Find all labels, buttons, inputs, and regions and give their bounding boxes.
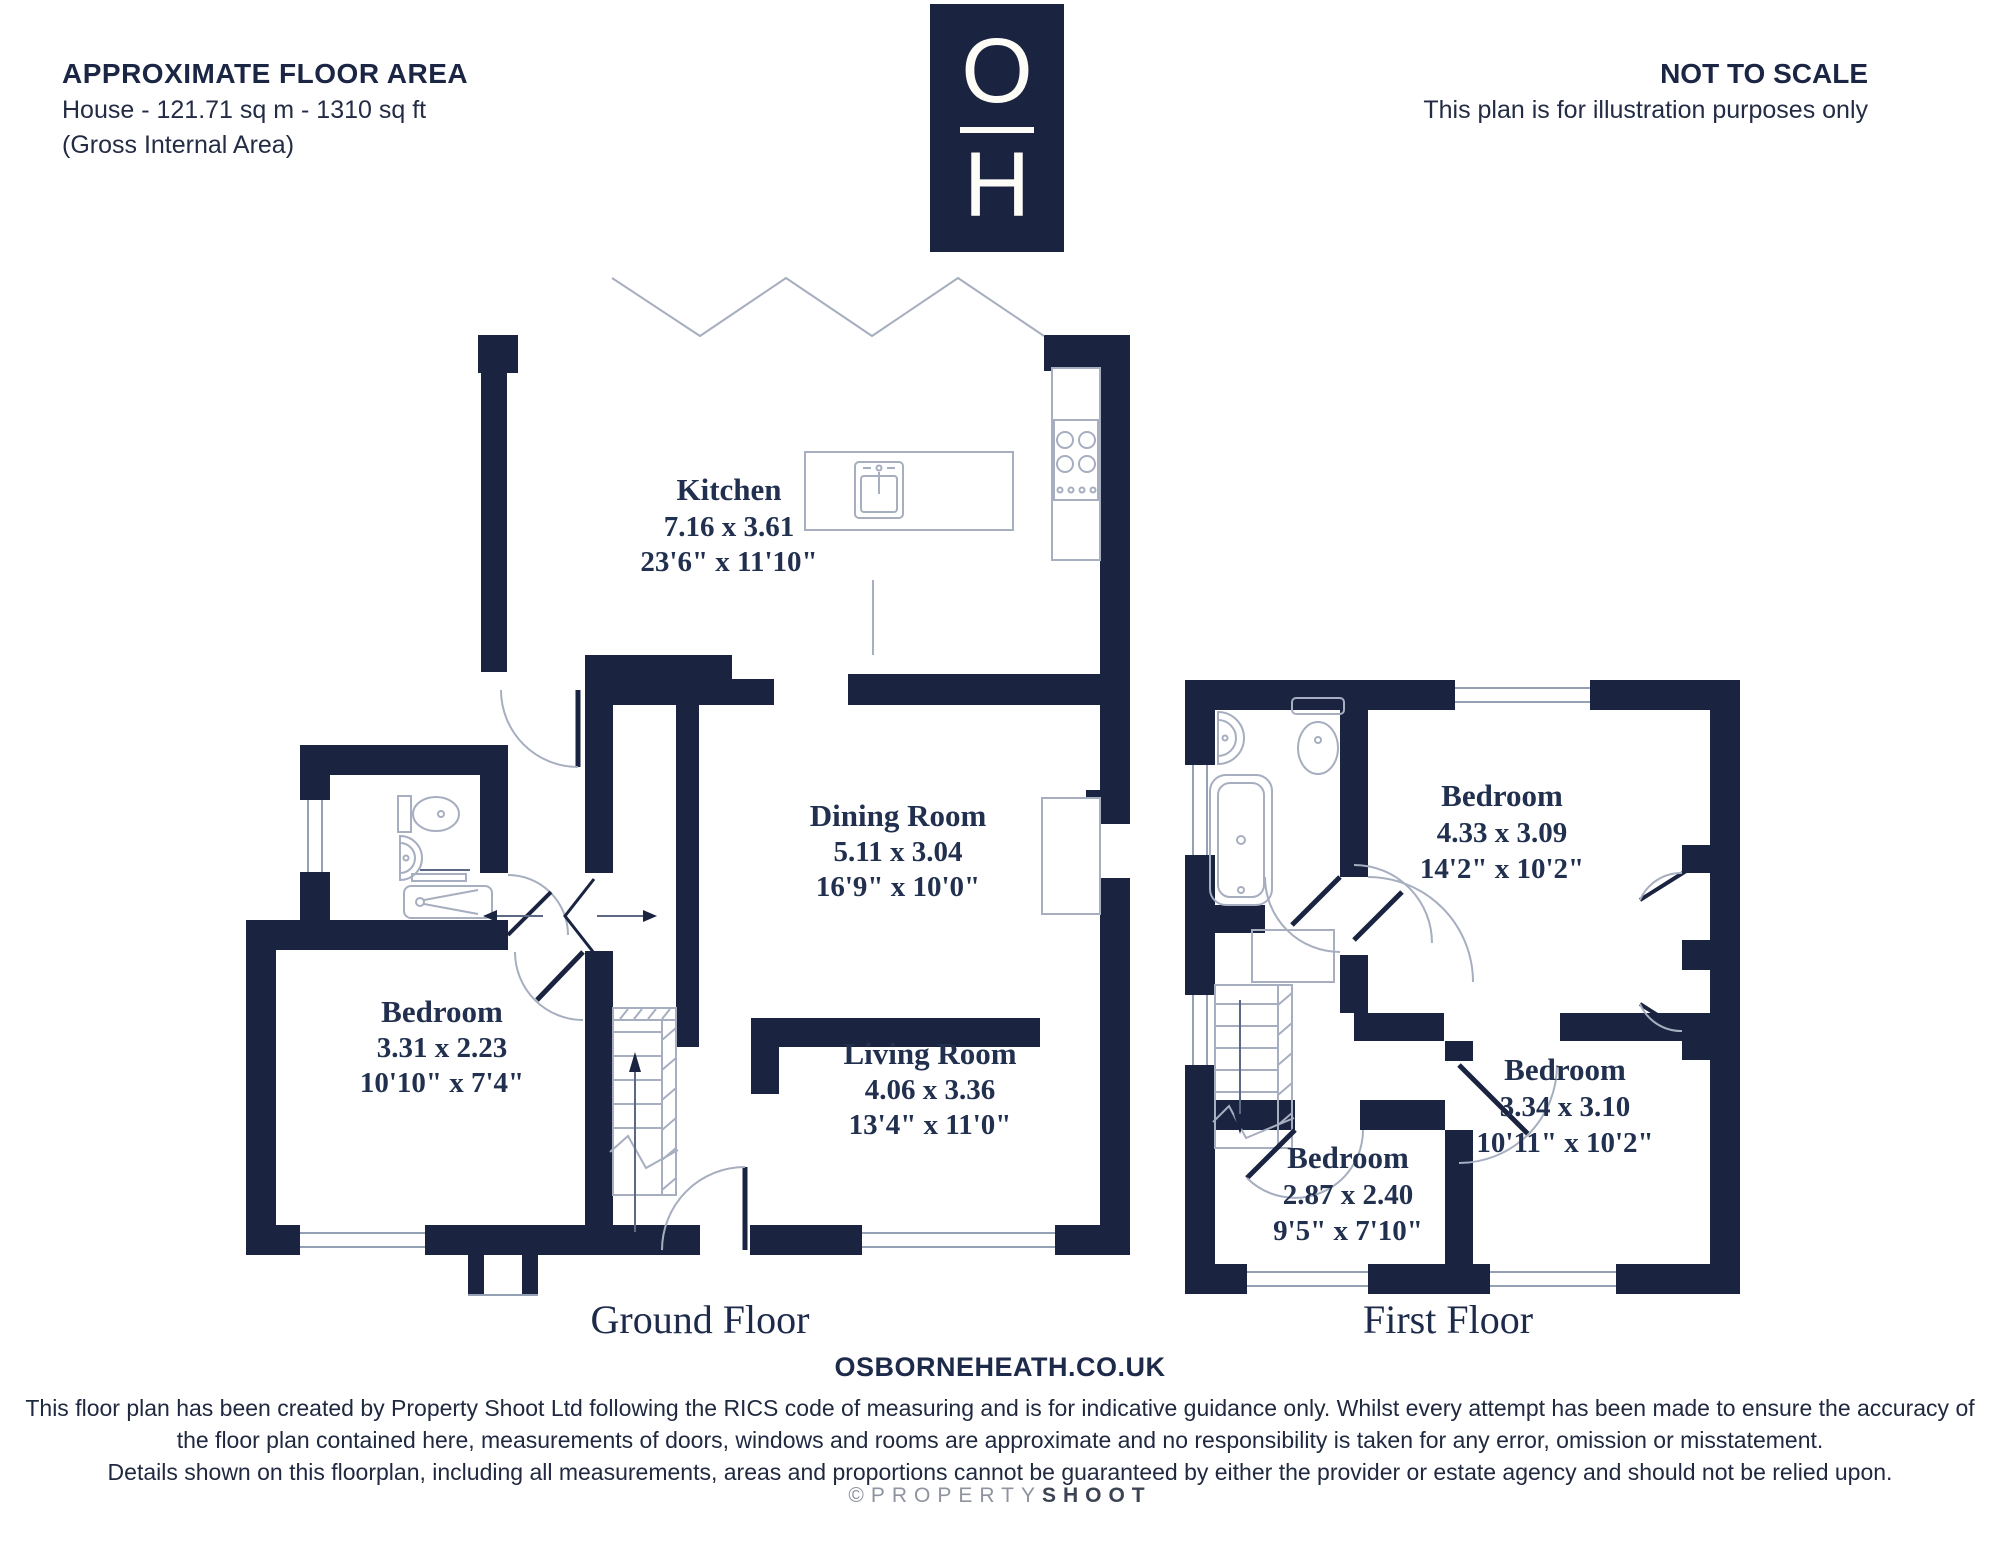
room-label-bedroom-ground: Bedroom 3.31 x 2.23 10'10" x 7'4" xyxy=(360,994,524,1099)
room-name: Bedroom xyxy=(1287,1140,1409,1175)
room-metric: 5.11 x 3.04 xyxy=(834,836,963,868)
bathroom-door-first xyxy=(1265,877,1340,952)
room-metric: 3.31 x 2.23 xyxy=(377,1032,508,1064)
room-name: Dining Room xyxy=(810,798,987,833)
bedroom-door-ground xyxy=(515,952,583,1020)
room-imperial: 10'10" x 7'4" xyxy=(360,1067,524,1099)
room-imperial: 9'5" x 7'10" xyxy=(1273,1215,1423,1247)
room-label-bedroom-1: Bedroom 4.33 x 3.09 14'2" x 10'2" xyxy=(1420,778,1584,885)
hob-icon xyxy=(1054,420,1098,500)
ground-floor-caption: Ground Floor xyxy=(520,1296,880,1343)
ground-floor-plan: Kitchen 7.16 x 3.61 23'6" x 11'10" Dinin… xyxy=(246,278,1130,1295)
room-imperial: 23'6" x 11'10" xyxy=(640,546,817,578)
website-text: OSBORNEHEATH.CO.UK xyxy=(0,1352,2000,1383)
first-floor-plan: Bedroom 4.33 x 3.09 14'2" x 10'2" Bedroo… xyxy=(1185,680,1740,1294)
room-name: Living Room xyxy=(843,1036,1016,1071)
room-imperial: 16'9" x 10'0" xyxy=(816,871,980,903)
room-metric: 7.16 x 3.61 xyxy=(664,511,795,543)
shower-icon xyxy=(404,886,492,918)
kitchen-island xyxy=(805,452,1013,530)
room-label-bedroom-3: Bedroom 2.87 x 2.40 9'5" x 7'10" xyxy=(1273,1140,1423,1247)
toilet-icon xyxy=(398,796,459,832)
disclaimer-line2: the floor plan contained here, measureme… xyxy=(0,1424,2000,1456)
first-floor-caption: First Floor xyxy=(1268,1296,1628,1343)
room-label-bedroom-2: Bedroom 3.34 x 3.10 10'11" x 10'2" xyxy=(1476,1052,1653,1159)
fireplace-icon xyxy=(1042,798,1100,914)
room-metric: 4.06 x 3.36 xyxy=(865,1074,996,1106)
room-metric: 3.34 x 3.10 xyxy=(1500,1091,1631,1123)
room-imperial: 14'2" x 10'2" xyxy=(1420,853,1584,885)
first-floor-walls xyxy=(1185,680,1740,1294)
room-imperial: 13'4" x 11'0" xyxy=(849,1109,1012,1141)
room-metric: 2.87 x 2.40 xyxy=(1283,1179,1414,1211)
room-name: Bedroom xyxy=(1504,1052,1626,1087)
hall-doorway-chevron xyxy=(565,879,594,953)
towel-rail-icon xyxy=(412,870,470,881)
room-name: Bedroom xyxy=(381,994,503,1029)
disclaimer: This floor plan has been created by Prop… xyxy=(0,1392,2000,1488)
room-label-living: Living Room 4.06 x 3.36 13'4" x 11'0" xyxy=(843,1036,1016,1141)
bathroom-door xyxy=(508,875,568,935)
basin-icon-first xyxy=(1218,712,1244,764)
room-name: Bedroom xyxy=(1441,778,1563,813)
stairs-ground-floor xyxy=(610,1008,678,1232)
wardrobe-doors xyxy=(1640,871,1686,1033)
room-name: Kitchen xyxy=(676,472,781,507)
room-label-dining: Dining Room 5.11 x 3.04 16'9" x 10'0" xyxy=(810,798,987,903)
room-metric: 4.33 x 3.09 xyxy=(1437,817,1568,849)
footer-brand: SHOOT xyxy=(1042,1484,1152,1507)
disclaimer-line1: This floor plan has been created by Prop… xyxy=(0,1392,2000,1424)
sink-icon xyxy=(855,462,903,518)
room-label-kitchen: Kitchen 7.16 x 3.61 23'6" x 11'10" xyxy=(640,472,817,578)
bifold-doors-zigzag xyxy=(612,278,1044,336)
entry-arrow-right xyxy=(597,910,657,922)
room-imperial: 10'11" x 10'2" xyxy=(1476,1127,1653,1159)
floorplan-page: APPROXIMATE FLOOR AREA House - 121.71 sq… xyxy=(0,0,2000,1545)
property-shoot-footer: ©PROPERTYSHOOT xyxy=(0,1484,2000,1508)
floor-plan-drawing: Kitchen 7.16 x 3.61 23'6" x 11'10" Dinin… xyxy=(0,0,2000,1545)
kitchen-door xyxy=(501,690,578,767)
footer-copyright: ©PROPERTY xyxy=(848,1484,1042,1507)
bathtub-icon xyxy=(1210,775,1272,905)
